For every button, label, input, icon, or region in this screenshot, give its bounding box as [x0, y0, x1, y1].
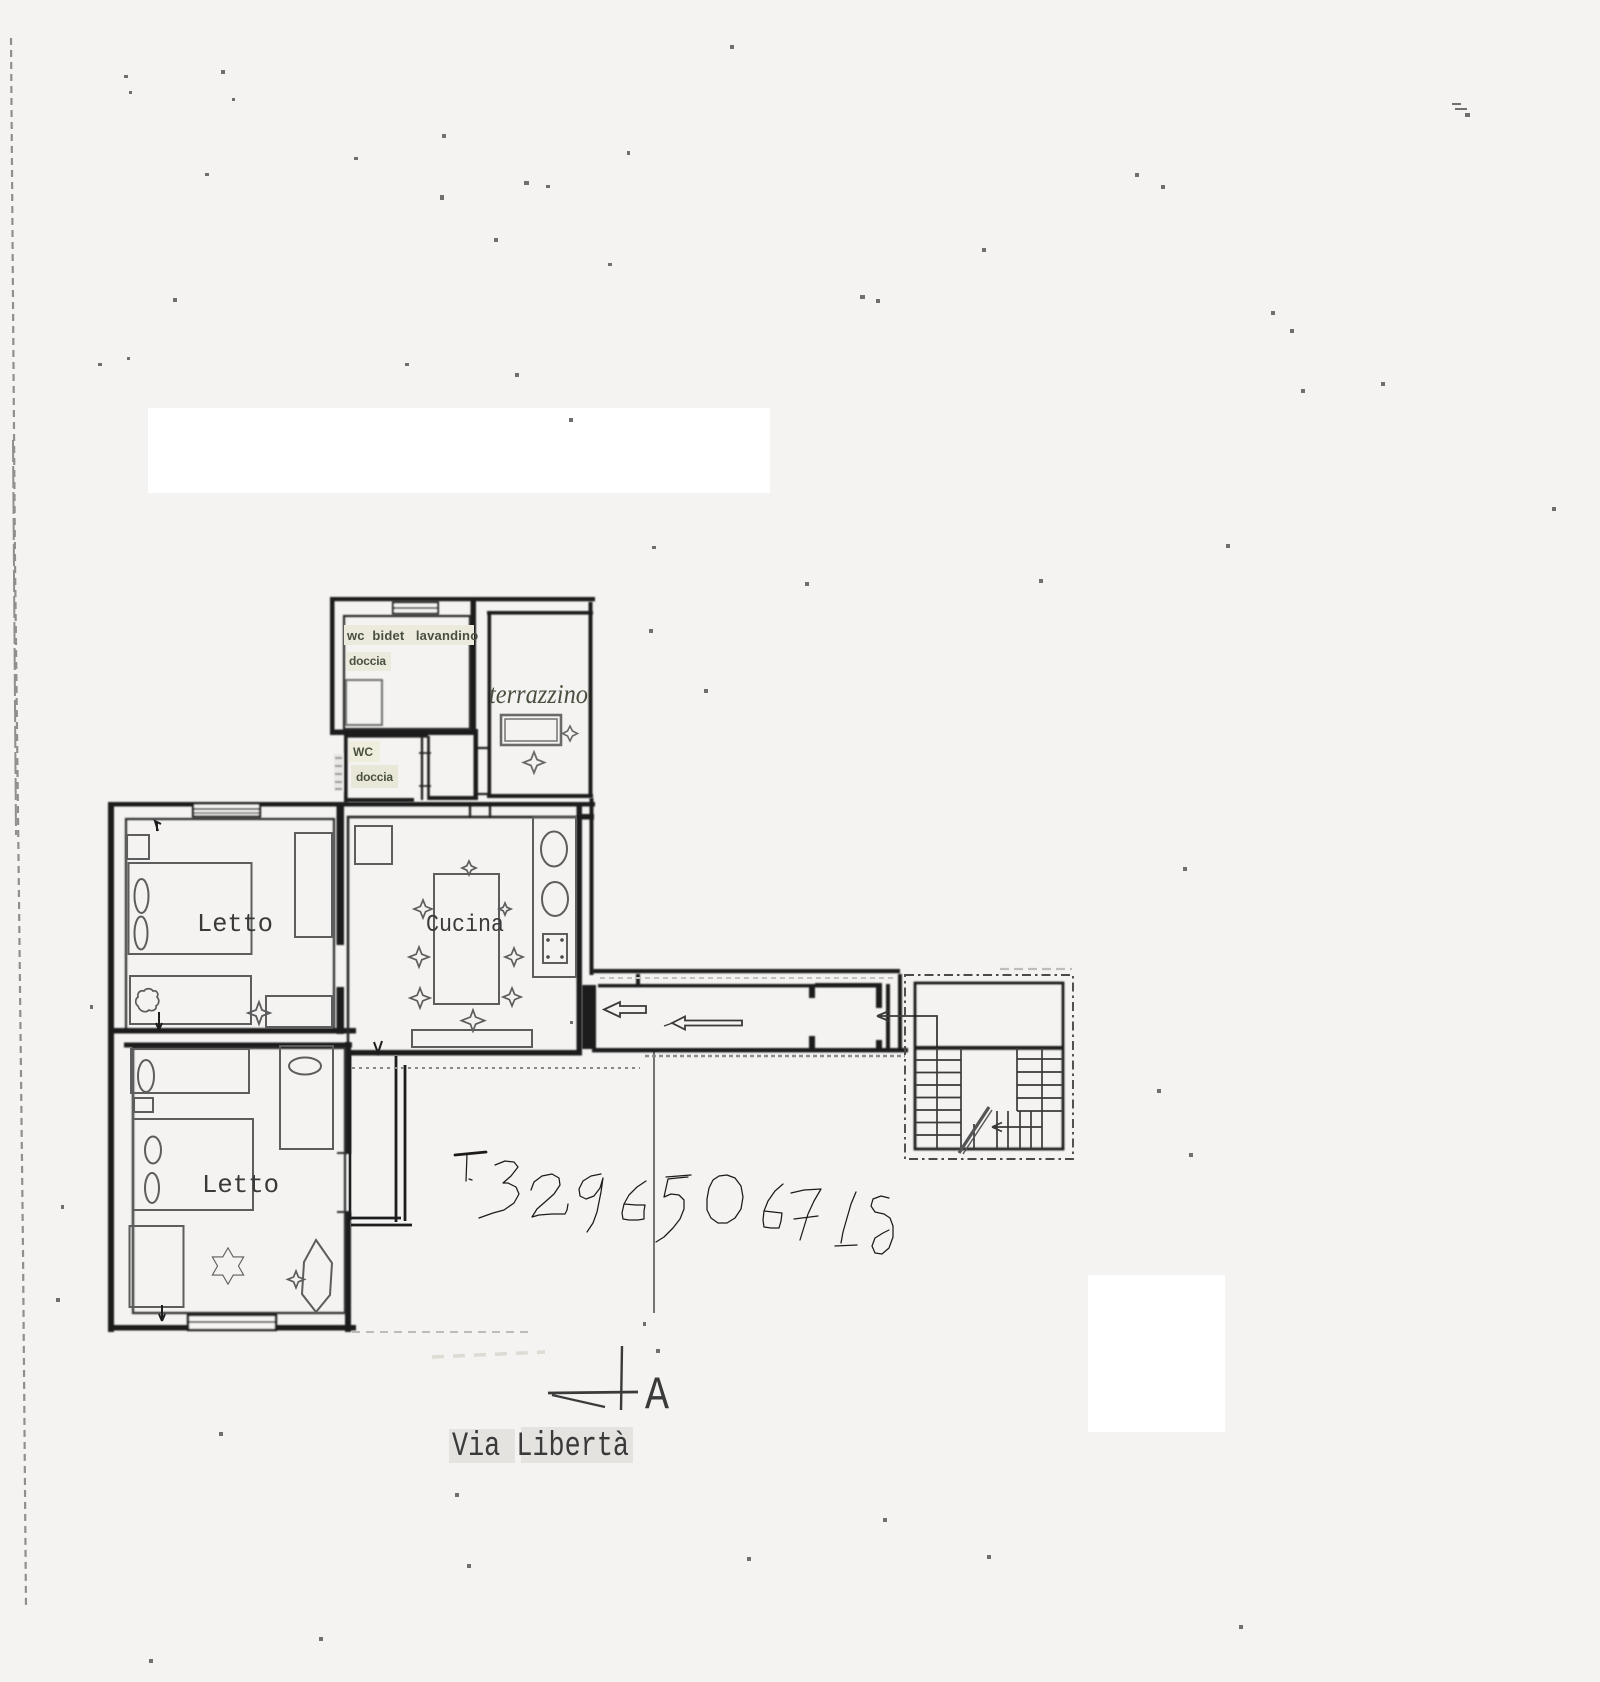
- svg-text:Via Libertà: Via Libertà: [452, 1428, 629, 1466]
- svg-text:WC: WC: [353, 745, 373, 759]
- svg-text:terrazzino: terrazzino: [489, 679, 588, 709]
- svg-text:Letto: Letto: [202, 1170, 279, 1200]
- svg-text:wc bidet lavandino: wc bidet lavandino: [346, 628, 478, 643]
- svg-text:Cucina: Cucina: [426, 912, 504, 939]
- svg-text:A: A: [645, 1370, 669, 1422]
- svg-text:doccia: doccia: [349, 654, 386, 668]
- svg-text:doccia: doccia: [356, 770, 393, 784]
- svg-text:Letto: Letto: [197, 909, 273, 939]
